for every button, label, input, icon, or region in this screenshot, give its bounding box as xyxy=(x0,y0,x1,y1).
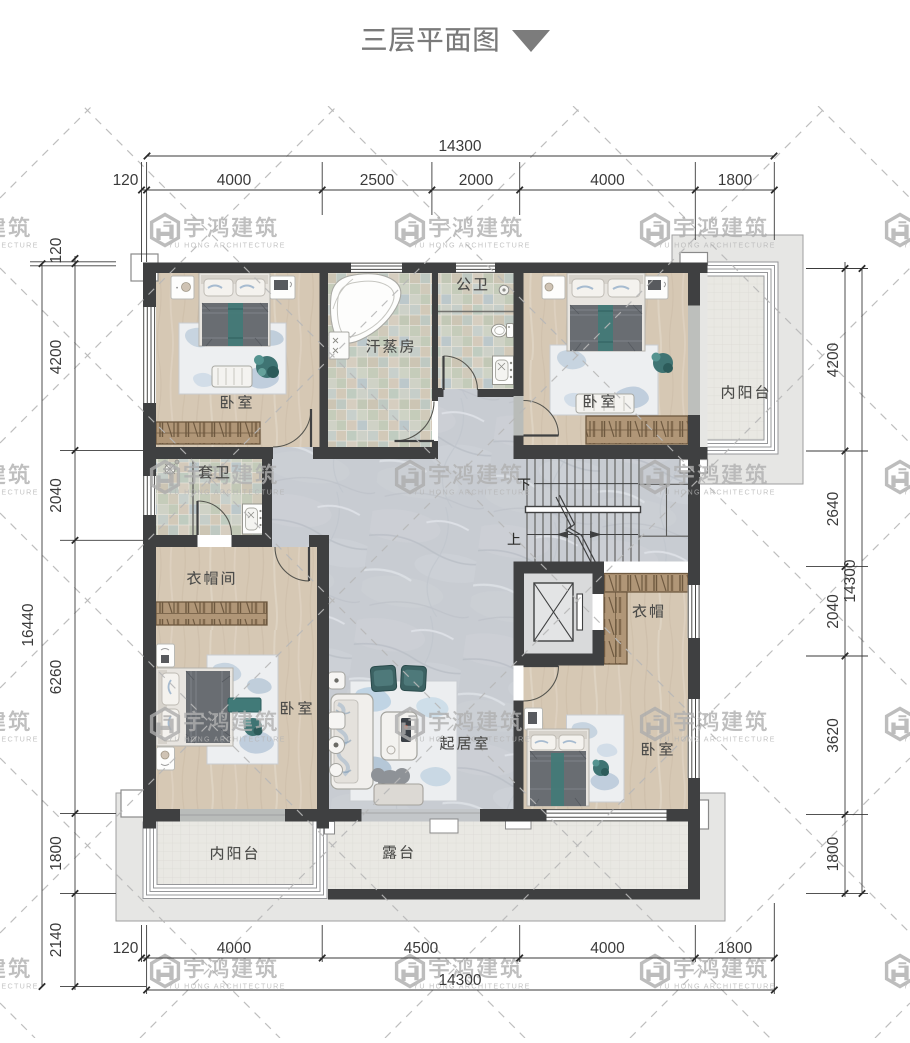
svg-text:14300: 14300 xyxy=(438,138,481,155)
svg-text:YU HONG ARCHITECTURE: YU HONG ARCHITECTURE xyxy=(0,488,39,497)
svg-text:4200: 4200 xyxy=(48,339,65,374)
svg-text:3620: 3620 xyxy=(825,718,842,753)
svg-text:YU HONG ARCHITECTURE: YU HONG ARCHITECTURE xyxy=(0,735,39,744)
svg-text:4200: 4200 xyxy=(825,342,842,377)
svg-text:6260: 6260 xyxy=(48,659,65,694)
svg-text:YU HONG ARCHITECTURE: YU HONG ARCHITECTURE xyxy=(168,241,285,250)
svg-text:1800: 1800 xyxy=(718,172,753,189)
svg-text:14300: 14300 xyxy=(438,972,481,989)
svg-text:YU HONG ARCHITECTURE: YU HONG ARCHITECTURE xyxy=(658,982,775,991)
svg-text:2000: 2000 xyxy=(459,172,494,189)
svg-text:YU HONG ARCHITECTURE: YU HONG ARCHITECTURE xyxy=(903,982,910,991)
svg-text:YU HONG ARCHITECTURE: YU HONG ARCHITECTURE xyxy=(658,488,775,497)
svg-text:YU HONG ARCHITECTURE: YU HONG ARCHITECTURE xyxy=(658,241,775,250)
svg-text:4000: 4000 xyxy=(217,172,252,189)
svg-text:YU HONG ARCHITECTURE: YU HONG ARCHITECTURE xyxy=(903,735,910,744)
svg-text:YU HONG ARCHITECTURE: YU HONG ARCHITECTURE xyxy=(413,241,530,250)
svg-text:1800: 1800 xyxy=(48,836,65,871)
svg-text:YU HONG ARCHITECTURE: YU HONG ARCHITECTURE xyxy=(168,735,285,744)
svg-text:1800: 1800 xyxy=(718,940,753,957)
svg-text:YU HONG ARCHITECTURE: YU HONG ARCHITECTURE xyxy=(903,488,910,497)
svg-text:4500: 4500 xyxy=(404,940,439,957)
svg-text:2640: 2640 xyxy=(825,491,842,526)
svg-text:YU HONG ARCHITECTURE: YU HONG ARCHITECTURE xyxy=(168,982,285,991)
svg-text:YU HONG ARCHITECTURE: YU HONG ARCHITECTURE xyxy=(0,982,39,991)
svg-text:14300: 14300 xyxy=(842,559,859,602)
svg-text:YU HONG ARCHITECTURE: YU HONG ARCHITECTURE xyxy=(903,241,910,250)
svg-text:4000: 4000 xyxy=(590,172,625,189)
svg-text:4000: 4000 xyxy=(590,940,625,957)
svg-text:16440: 16440 xyxy=(20,603,37,646)
svg-text:2040: 2040 xyxy=(825,594,842,629)
svg-text:YU HONG ARCHITECTURE: YU HONG ARCHITECTURE xyxy=(413,488,530,497)
svg-text:YU HONG ARCHITECTURE: YU HONG ARCHITECTURE xyxy=(168,488,285,497)
svg-text:YU HONG ARCHITECTURE: YU HONG ARCHITECTURE xyxy=(0,241,39,250)
svg-text:2040: 2040 xyxy=(48,478,65,513)
svg-text:1800: 1800 xyxy=(825,836,842,871)
svg-text:•: • xyxy=(176,286,178,292)
svg-text:4000: 4000 xyxy=(217,940,252,957)
svg-text:YU HONG ARCHITECTURE: YU HONG ARCHITECTURE xyxy=(658,735,775,744)
svg-text:120: 120 xyxy=(113,940,139,957)
svg-text:2140: 2140 xyxy=(48,922,65,957)
svg-text:120: 120 xyxy=(48,237,65,263)
svg-text:YU HONG ARCHITECTURE: YU HONG ARCHITECTURE xyxy=(413,735,530,744)
svg-text:120: 120 xyxy=(113,172,139,189)
svg-text:2500: 2500 xyxy=(360,172,395,189)
